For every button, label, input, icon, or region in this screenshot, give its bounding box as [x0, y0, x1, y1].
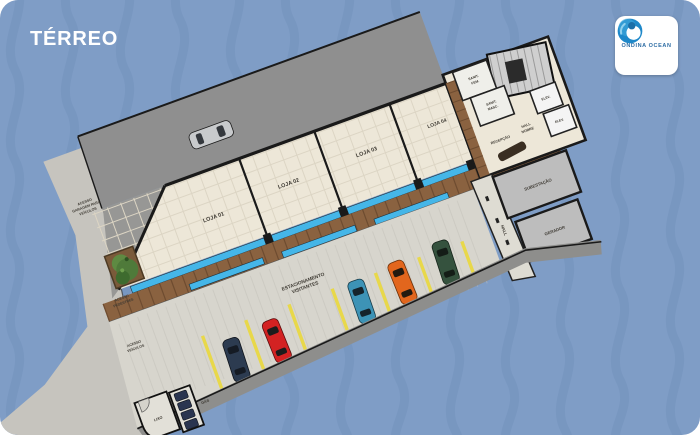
page-title: TÉRREO [30, 28, 118, 51]
ocean-wave-icon [615, 16, 645, 46]
site-plan: LOJA 01 LOJA 02 LOJA 03 LOJA 04 SANIT. F… [0, 0, 641, 435]
plan-canvas: TÉRREO ONDINA OCEAN [0, 0, 700, 435]
ondina-ocean-logo: ONDINA OCEAN [615, 16, 678, 75]
